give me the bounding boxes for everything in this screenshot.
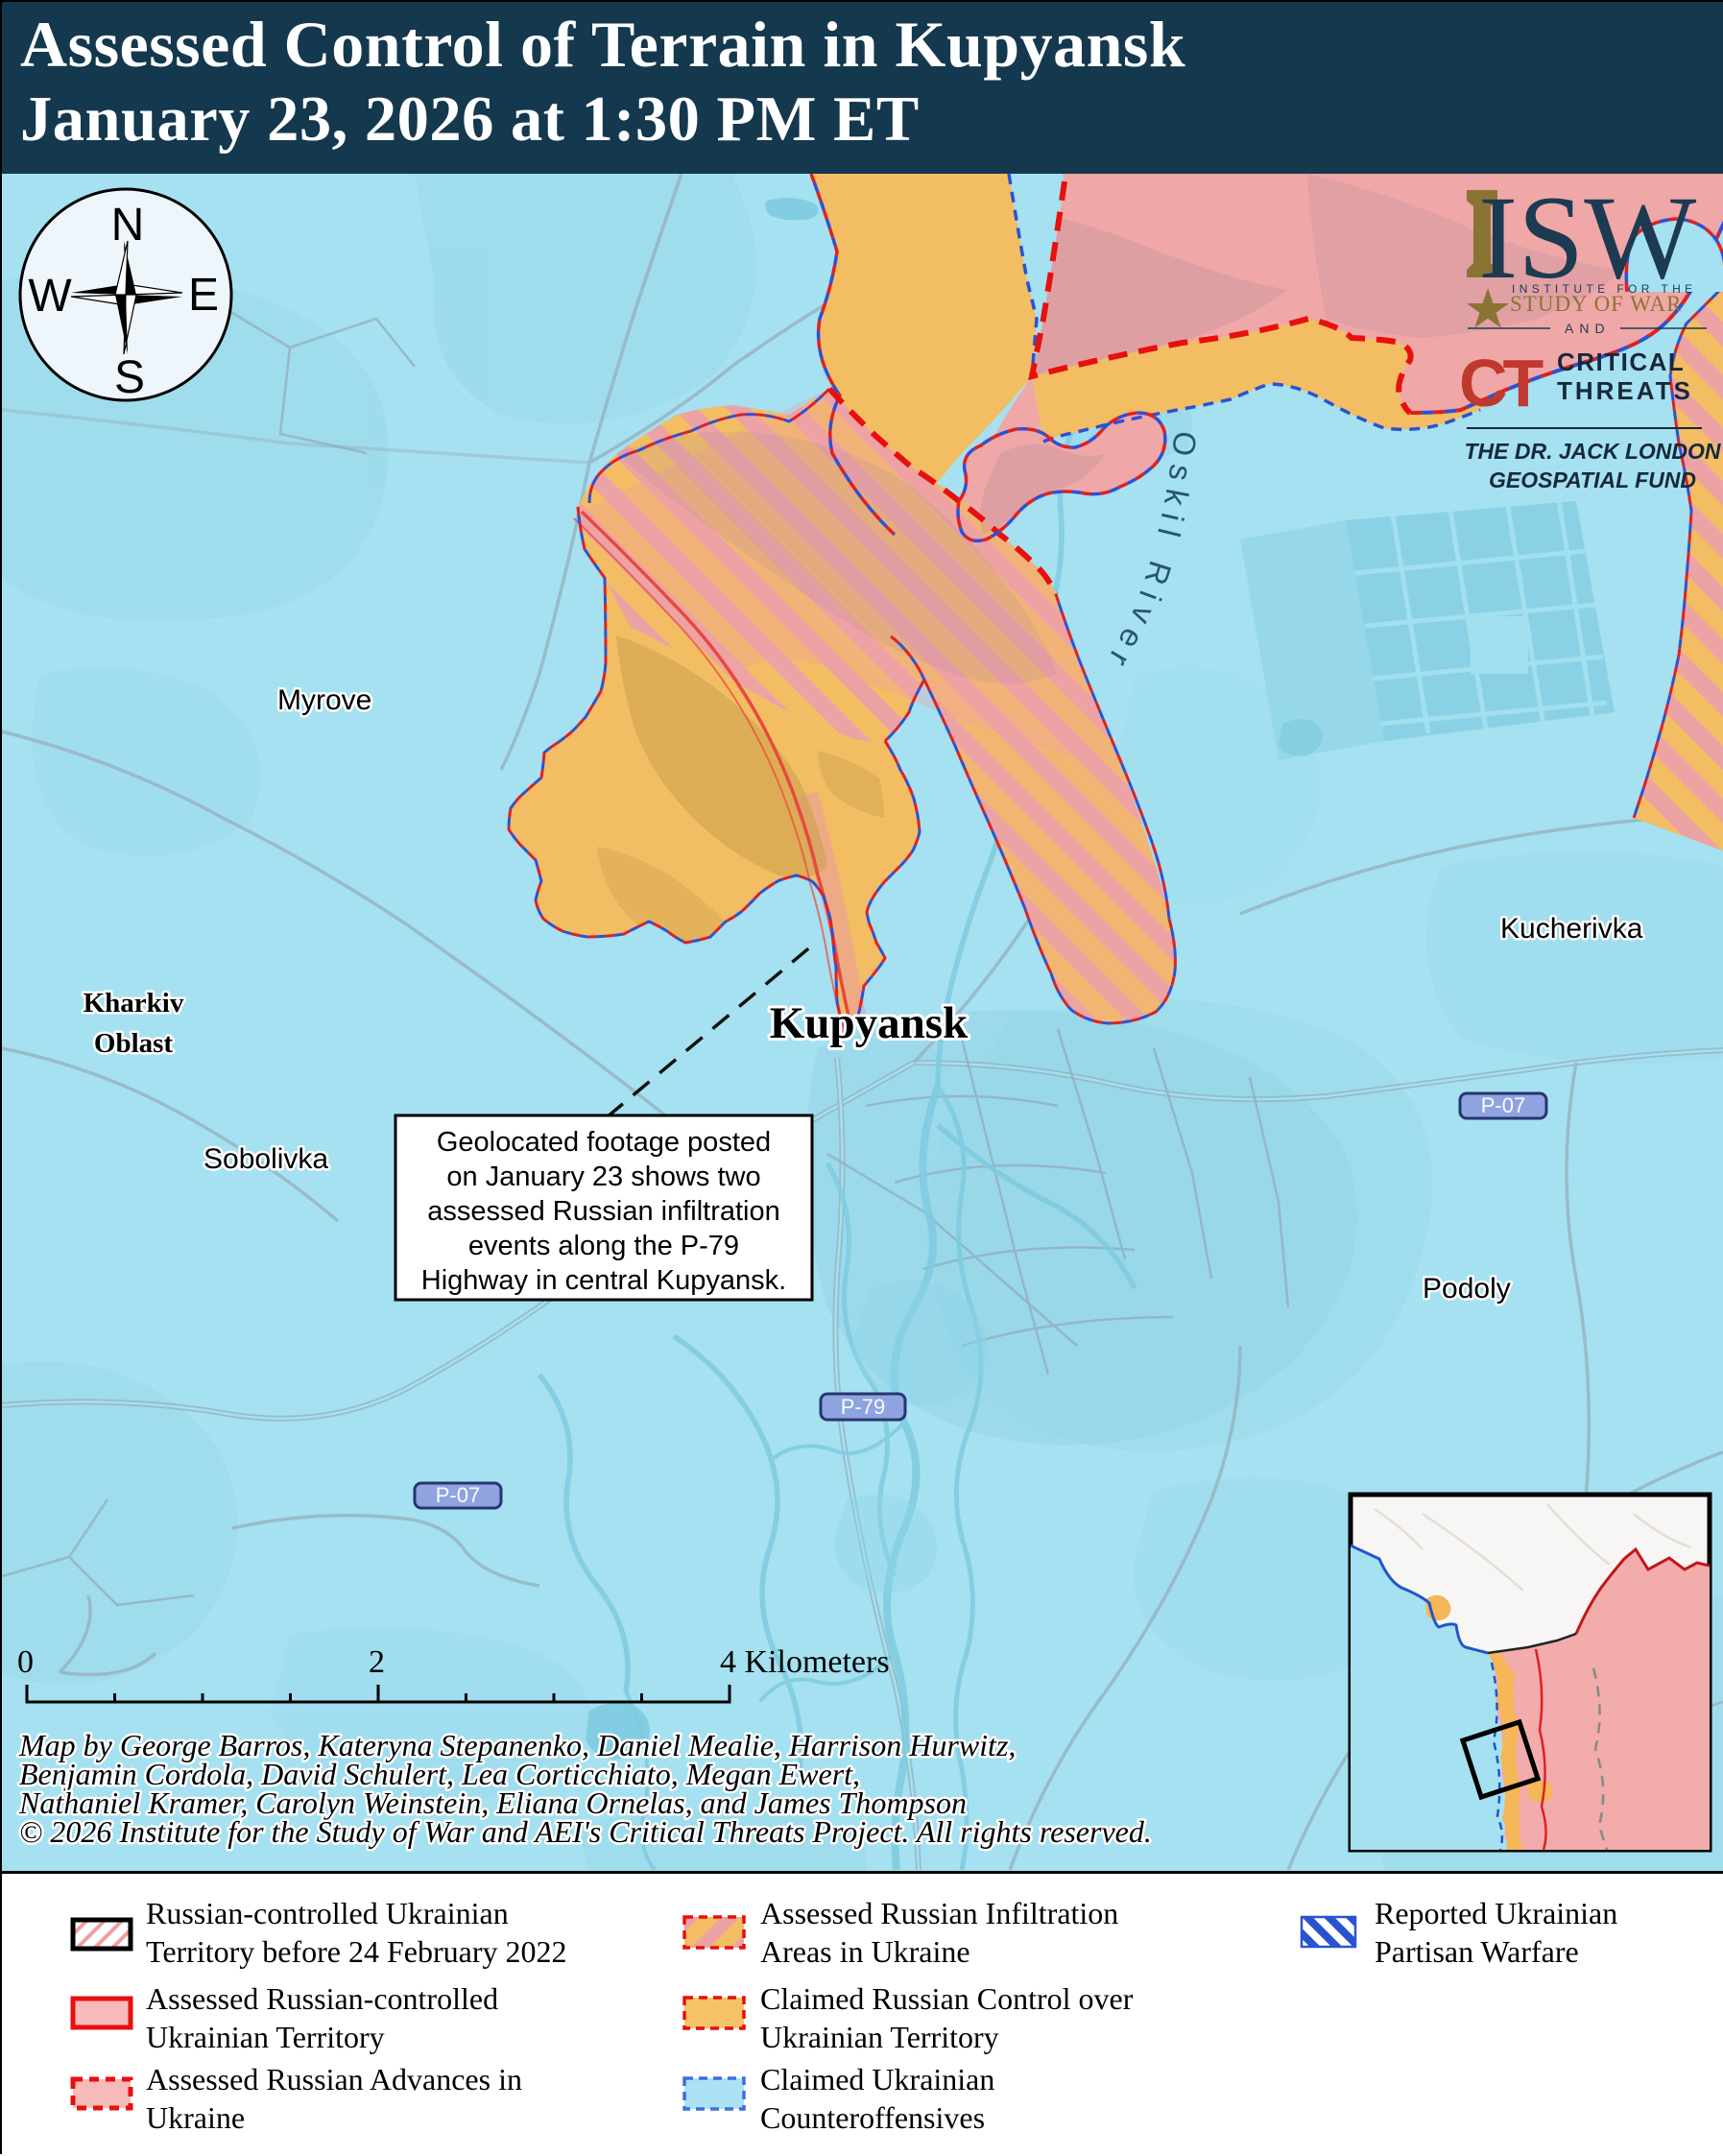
svg-text:P-07: P-07 xyxy=(1481,1093,1525,1117)
svg-text:Kucherivka: Kucherivka xyxy=(1500,913,1643,945)
svg-text:Podoly: Podoly xyxy=(1423,1273,1511,1305)
svg-text:E: E xyxy=(188,270,219,321)
svg-text:GEOSPATIAL FUND: GEOSPATIAL FUND xyxy=(1489,467,1696,492)
svg-text:Geolocated footage posted: Geolocated footage posted xyxy=(437,1127,771,1158)
svg-text:N: N xyxy=(111,200,145,251)
svg-text:assessed Russian infiltration: assessed Russian infiltration xyxy=(427,1196,780,1227)
svg-text:Kupyansk: Kupyansk xyxy=(770,998,969,1048)
svg-text:© 2026 Institute for the Study: © 2026 Institute for the Study of War an… xyxy=(19,1814,1152,1849)
svg-text:P-79: P-79 xyxy=(841,1395,885,1419)
svg-text:THREATS: THREATS xyxy=(1557,376,1693,405)
svg-text:Oblast: Oblast xyxy=(94,1028,174,1059)
svg-text:Myrove: Myrove xyxy=(277,684,371,716)
svg-text:Kharkiv: Kharkiv xyxy=(84,988,184,1018)
svg-text:W: W xyxy=(28,271,72,322)
svg-text:CT: CT xyxy=(1459,346,1544,420)
svg-text:Sobolivka: Sobolivka xyxy=(203,1143,328,1175)
svg-text:S: S xyxy=(114,352,145,403)
svg-text:AND: AND xyxy=(1565,321,1611,336)
svg-text:STUDY OF WAR: STUDY OF WAR xyxy=(1510,292,1682,316)
svg-text:CRITICAL: CRITICAL xyxy=(1557,347,1685,376)
svg-text:THE DR. JACK LONDON: THE DR. JACK LONDON xyxy=(1464,439,1720,464)
svg-text:0: 0 xyxy=(17,1644,34,1680)
svg-text:events along the P-79: events along the P-79 xyxy=(468,1231,739,1261)
svg-text:P-07: P-07 xyxy=(436,1483,480,1507)
svg-text:2: 2 xyxy=(369,1644,385,1680)
svg-text:on January 23 shows two: on January 23 shows two xyxy=(446,1162,760,1192)
svg-text:4 Kilometers: 4 Kilometers xyxy=(720,1644,890,1680)
svg-text:Highway in central Kupyansk.: Highway in central Kupyansk. xyxy=(421,1265,786,1296)
